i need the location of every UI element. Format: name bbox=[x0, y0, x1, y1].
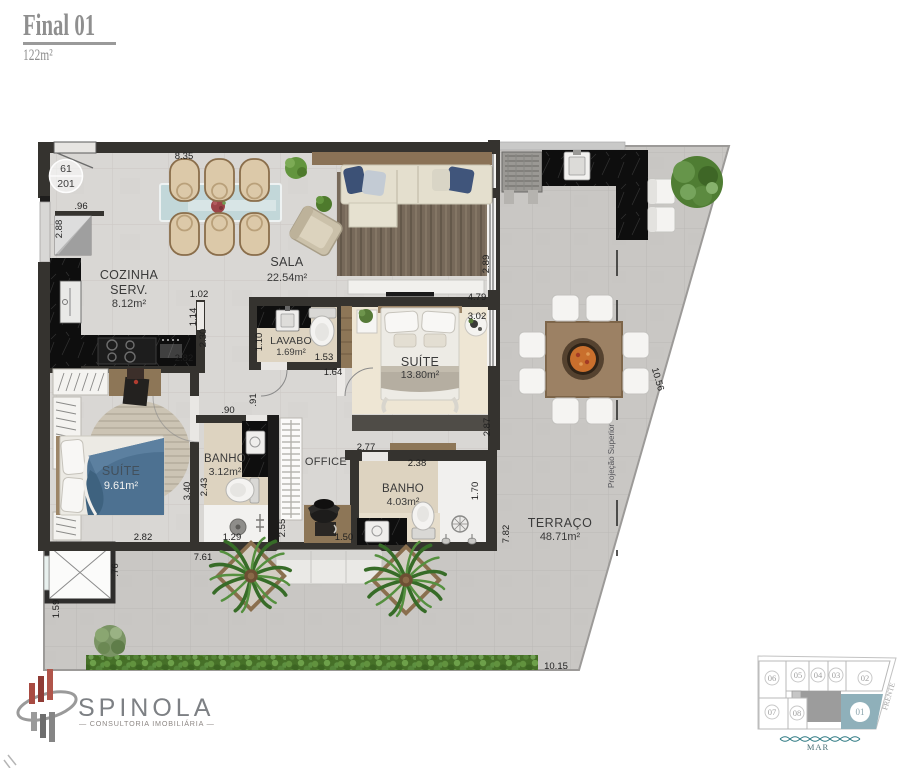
svg-text:TERRAÇO: TERRAÇO bbox=[528, 516, 593, 530]
svg-text:01: 01 bbox=[856, 707, 865, 717]
svg-text:BANHO: BANHO bbox=[204, 453, 246, 465]
svg-text:2.30: 2.30 bbox=[198, 329, 209, 348]
svg-text:1.02: 1.02 bbox=[190, 289, 209, 300]
svg-text:06: 06 bbox=[768, 673, 777, 683]
svg-text:Final 01: Final 01 bbox=[23, 7, 95, 42]
svg-text:05: 05 bbox=[794, 670, 803, 680]
svg-text:1.14: 1.14 bbox=[188, 308, 199, 327]
svg-text:2.77: 2.77 bbox=[357, 442, 376, 453]
svg-text:2.89: 2.89 bbox=[481, 255, 492, 274]
svg-text:04: 04 bbox=[814, 670, 823, 680]
svg-text:48.71m²: 48.71m² bbox=[540, 531, 581, 543]
svg-text:.76: .76 bbox=[110, 563, 121, 576]
svg-text:SERV.: SERV. bbox=[110, 283, 148, 297]
svg-text:122m²: 122m² bbox=[23, 47, 53, 64]
svg-text:BANHO: BANHO bbox=[382, 483, 424, 495]
svg-text:SALA: SALA bbox=[270, 255, 304, 269]
svg-text:2.43: 2.43 bbox=[199, 478, 210, 497]
svg-text:1.69m²: 1.69m² bbox=[276, 347, 306, 358]
svg-text:2.38: 2.38 bbox=[408, 458, 427, 469]
svg-text:4.03m²: 4.03m² bbox=[387, 496, 420, 508]
svg-text:1.50: 1.50 bbox=[335, 532, 354, 543]
svg-text:22.54m²: 22.54m² bbox=[267, 272, 308, 284]
svg-text:MAR: MAR bbox=[807, 742, 829, 752]
svg-text:3.40: 3.40 bbox=[182, 482, 193, 501]
svg-text:201: 201 bbox=[57, 178, 75, 190]
svg-text:COZINHA: COZINHA bbox=[100, 268, 159, 282]
svg-text:1.29: 1.29 bbox=[223, 532, 242, 543]
svg-text:3.02: 3.02 bbox=[468, 311, 487, 322]
svg-text:7.82: 7.82 bbox=[501, 525, 512, 544]
svg-text:SUÍTE: SUÍTE bbox=[102, 463, 140, 478]
svg-text:1.10: 1.10 bbox=[254, 333, 265, 352]
svg-text:.96: .96 bbox=[74, 201, 87, 212]
svg-text:08: 08 bbox=[793, 708, 802, 718]
svg-text:.91: .91 bbox=[248, 393, 259, 406]
svg-text:3.12m²: 3.12m² bbox=[209, 466, 242, 478]
svg-text:1.53: 1.53 bbox=[315, 352, 334, 363]
svg-text:Projeção Superior: Projeção Superior bbox=[607, 424, 616, 488]
svg-text:13.80m²: 13.80m² bbox=[401, 369, 440, 381]
svg-text:2.82: 2.82 bbox=[134, 532, 153, 543]
svg-text:LAVABO: LAVABO bbox=[270, 335, 312, 347]
svg-text:10.15: 10.15 bbox=[544, 661, 568, 672]
svg-text:9.61m²: 9.61m² bbox=[104, 480, 139, 492]
svg-text:61: 61 bbox=[60, 163, 72, 175]
svg-text:SPINOLA: SPINOLA bbox=[78, 694, 214, 722]
svg-text:7.61: 7.61 bbox=[194, 552, 213, 563]
svg-text:2.82: 2.82 bbox=[175, 353, 194, 364]
svg-text:4.79: 4.79 bbox=[468, 292, 487, 303]
svg-text:— CONSULTORIA IMOBILIÁRIA —: — CONSULTORIA IMOBILIÁRIA — bbox=[79, 719, 215, 728]
svg-text:2.55: 2.55 bbox=[277, 519, 288, 538]
svg-text:8.12m²: 8.12m² bbox=[112, 298, 147, 310]
svg-text:2.87: 2.87 bbox=[482, 418, 493, 437]
svg-text:1.70: 1.70 bbox=[470, 482, 481, 501]
svg-text:1.64: 1.64 bbox=[324, 367, 343, 378]
svg-text:1.59: 1.59 bbox=[51, 600, 62, 619]
svg-text:03: 03 bbox=[832, 670, 841, 680]
svg-text:SUÍTE: SUÍTE bbox=[401, 354, 439, 369]
svg-text:8.35: 8.35 bbox=[175, 151, 194, 162]
svg-text:02: 02 bbox=[861, 673, 870, 683]
svg-text:OFFICE: OFFICE bbox=[305, 456, 347, 468]
svg-text:2.88: 2.88 bbox=[54, 220, 65, 239]
svg-text:07: 07 bbox=[768, 707, 777, 717]
svg-text:.90: .90 bbox=[221, 405, 234, 416]
